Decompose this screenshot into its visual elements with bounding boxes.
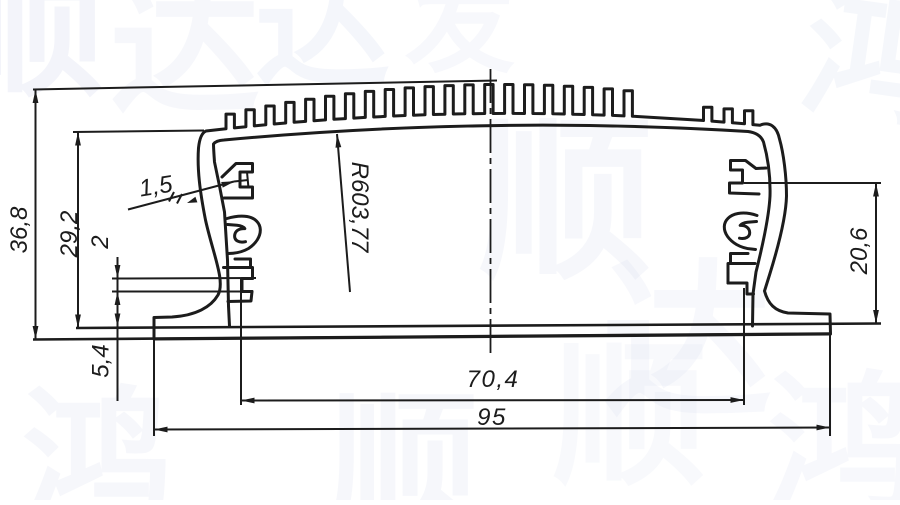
- svg-text:鸿: 鸿: [22, 376, 172, 500]
- svg-text:顺: 顺: [552, 330, 707, 500]
- svg-text:发: 发: [405, 0, 515, 86]
- svg-text:达: 达: [255, 0, 390, 103]
- svg-text:70,4: 70,4: [467, 366, 520, 393]
- svg-text:R603,77: R603,77: [346, 162, 373, 254]
- svg-text:29,2: 29,2: [56, 211, 83, 259]
- svg-text:达: 达: [110, 0, 260, 132]
- svg-text:5,4: 5,4: [88, 344, 115, 377]
- svg-text:2: 2: [87, 235, 114, 249]
- svg-text:36,8: 36,8: [6, 206, 33, 253]
- svg-text:顺: 顺: [328, 380, 478, 500]
- svg-text:95: 95: [477, 404, 507, 431]
- svg-text:20,6: 20,6: [846, 227, 873, 275]
- svg-text:鸿: 鸿: [768, 361, 900, 500]
- svg-text:顺: 顺: [0, 0, 105, 114]
- svg-text:1,5: 1,5: [137, 171, 175, 203]
- svg-text:鸿: 鸿: [794, 0, 900, 149]
